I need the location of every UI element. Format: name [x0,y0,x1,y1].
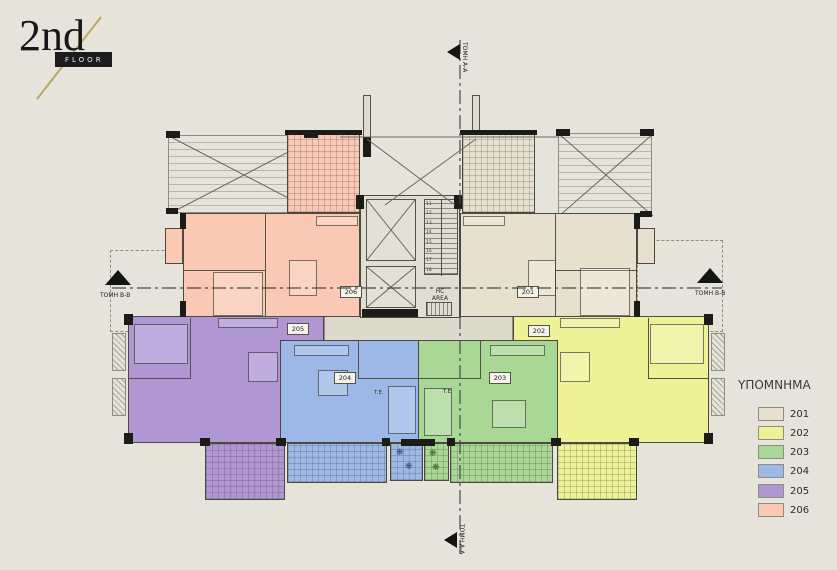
table-205 [248,352,278,382]
edge-planter [112,378,126,416]
plant-icon: ❋ [432,464,440,473]
interior-wall [358,378,421,379]
wall-segment [276,438,286,446]
wall-segment [401,439,435,446]
kitchen-203 [490,345,545,356]
interior-wall [183,270,265,271]
wall-segment [704,433,713,444]
bed-201 [580,268,630,316]
wall-segment [634,213,640,229]
balcony-204 [287,443,387,483]
legend-label: 201 [790,409,809,420]
bed-202 [650,324,704,364]
interior-wall [190,318,191,378]
wall-segment [304,131,318,138]
kitchen-201 [463,216,505,226]
table-202 [560,352,590,382]
plant-icon: ❋ [405,463,413,472]
legend-swatch [758,464,784,478]
wall-segment [166,131,180,138]
wall-segment [454,195,462,209]
wall-segment [362,309,418,317]
unit-tag-203: 203 [489,372,511,384]
section-marker-bottom-label: ΤΟΜΗ Α-Α [458,524,465,554]
interior-wall [648,378,708,379]
legend-swatch [758,426,784,440]
bed-204 [388,386,416,434]
plant-icon: ❋ [429,450,437,459]
wall-segment [640,129,654,136]
entry-steps [426,302,452,316]
kitchen-202 [560,318,620,328]
unit-tag-206: 206 [340,286,362,298]
interior-wall [265,213,266,317]
wall-segment [551,438,561,446]
section-marker-top-label: ΤΟΜΗ Α-Α [461,42,468,72]
unit-tag-204: 204 [334,372,356,384]
terrace-201 [462,133,535,213]
wall-segment [124,433,133,444]
balcony-202 [557,443,637,500]
kitchen-205 [218,318,278,328]
wall-segment [556,129,570,136]
legend-label: 204 [790,466,809,477]
interior-wall [480,341,481,378]
te-label-right: T.E. [443,389,453,395]
interior-wall [648,318,649,378]
wall-segment [200,438,210,446]
plant-icon: ❋ [396,449,404,458]
legend-swatch [758,407,784,421]
stair-step-numbers: 11 12 13 14 15 16 17 18 [426,200,434,275]
section-marker-bottom-icon [444,532,457,548]
terrace-206 [287,133,360,213]
wall-segment [382,438,390,446]
table-203 [492,400,526,428]
wall-segment [356,195,364,209]
balcony-203 [450,443,553,483]
unit-201-bath-bay [637,228,655,264]
edge-planter [711,333,725,371]
section-marker-left-icon [105,270,131,285]
wall-segment [180,301,186,317]
bed-205 [134,324,188,364]
interior-wall [358,341,359,378]
wall-segment [640,211,652,217]
legend-label: 205 [790,486,809,497]
legend-swatch [758,503,784,517]
wall-segment [447,438,455,446]
edge-planter [112,333,126,371]
section-marker-left-label: ΤΟΜΗ Β-Β [100,292,130,299]
legend-label: 203 [790,447,809,458]
wall-segment [704,314,713,325]
corridor [324,316,513,342]
elevator-shaft-upper [366,199,416,261]
interior-wall [129,378,191,379]
table-206 [289,260,317,296]
elevator-shaft-lower [366,266,416,308]
unit-tag-205: 205 [287,323,309,335]
column-left-base [363,137,371,157]
wall-segment [634,301,640,317]
legend-swatch [758,484,784,498]
wall-segment [285,130,362,135]
unit-tag-201: 201 [517,286,539,298]
balcony-205 [205,443,285,500]
wall-segment [180,213,186,229]
legend-heading: ΥΠΟΜΝΗΜΑ [738,378,811,392]
edge-planter [711,378,725,416]
kitchen-206 [316,216,358,226]
bed-203 [424,388,452,436]
te-label-left: T.E. [374,390,384,396]
wall-segment [629,438,639,446]
section-marker-right-icon [697,268,723,283]
kitchen-204 [294,345,349,356]
wall-segment [460,130,537,135]
section-marker-right-label: ΤΟΜΗ Β-Β [695,290,725,297]
pergola-top-right [558,133,652,215]
section-marker-top-icon [447,44,460,60]
unit-tag-202: 202 [528,325,550,337]
wall-segment [166,208,178,214]
legend-swatch [758,445,784,459]
floor-plan-page: 2nd FLOOR 11 12 13 14 15 16 17 [0,0,837,570]
floor-badge: FLOOR [55,52,112,67]
wall-segment [124,314,133,325]
interior-wall [419,378,481,379]
unit-206 [183,213,360,317]
legend-label: 206 [790,505,809,516]
legend-label: 202 [790,428,809,439]
hc-area-label: HC AREA [418,288,462,302]
unit-206-bath-bay [165,228,183,264]
bed-206 [213,272,263,316]
